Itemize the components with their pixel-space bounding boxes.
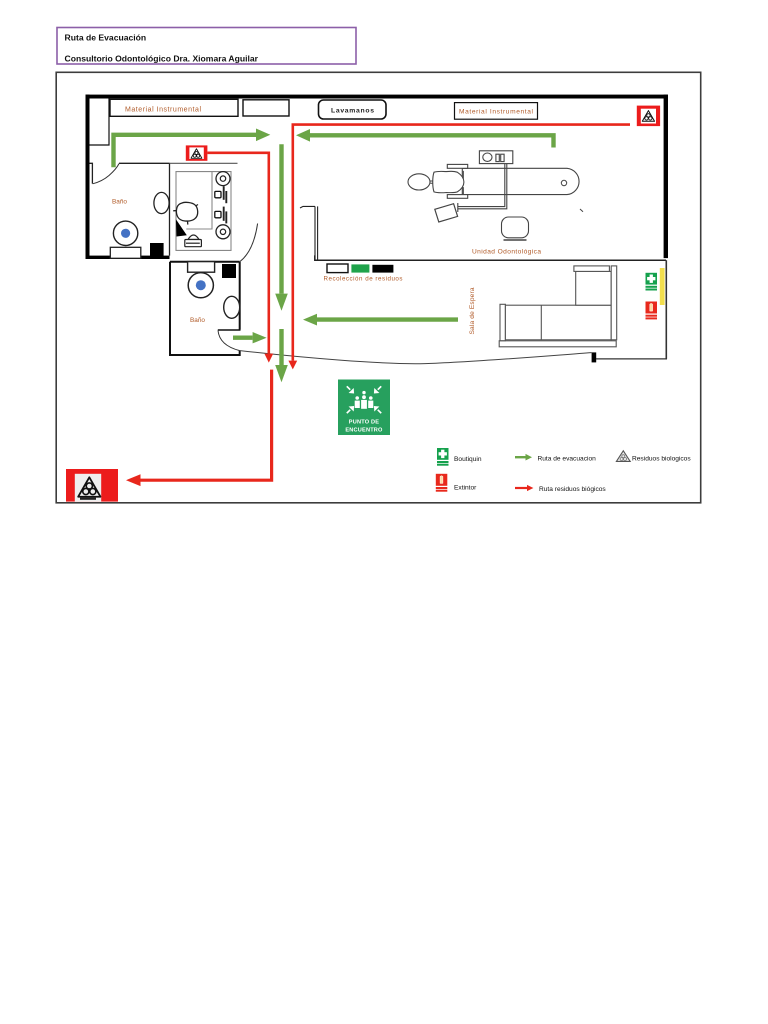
svg-text:Material Instrumental: Material Instrumental (125, 107, 201, 114)
svg-text:Extintor: Extintor (454, 485, 477, 492)
svg-text:ENCUENTRO: ENCUENTRO (345, 427, 383, 433)
svg-text:Unidad Odontológica: Unidad Odontológica (472, 249, 541, 256)
svg-text:Consultorio Odontológico Dra.: Consultorio Odontológico Dra. Xiomara Ag… (65, 54, 259, 64)
svg-text:Baño: Baño (190, 317, 205, 324)
svg-text:Ruta de Evacuación: Ruta de Evacuación (65, 33, 147, 43)
svg-text:Baño: Baño (112, 199, 127, 206)
svg-text:Residuos biologicos: Residuos biologicos (632, 456, 691, 463)
svg-text:Ruta residuos biógicos: Ruta residuos biógicos (539, 486, 606, 493)
svg-text:Recolección de residuos: Recolección de residuos (324, 276, 403, 283)
svg-text:Ruta de evacuacion: Ruta de evacuacion (538, 456, 597, 463)
svg-text:Boutiquin: Boutiquin (454, 456, 482, 463)
svg-text:PUNTO DE: PUNTO DE (349, 420, 379, 426)
svg-text:Sala de Espera: Sala de Espera (469, 287, 476, 334)
svg-text:Lavamanos: Lavamanos (331, 108, 374, 115)
svg-text:Material Instrumental: Material Instrumental (459, 109, 534, 116)
